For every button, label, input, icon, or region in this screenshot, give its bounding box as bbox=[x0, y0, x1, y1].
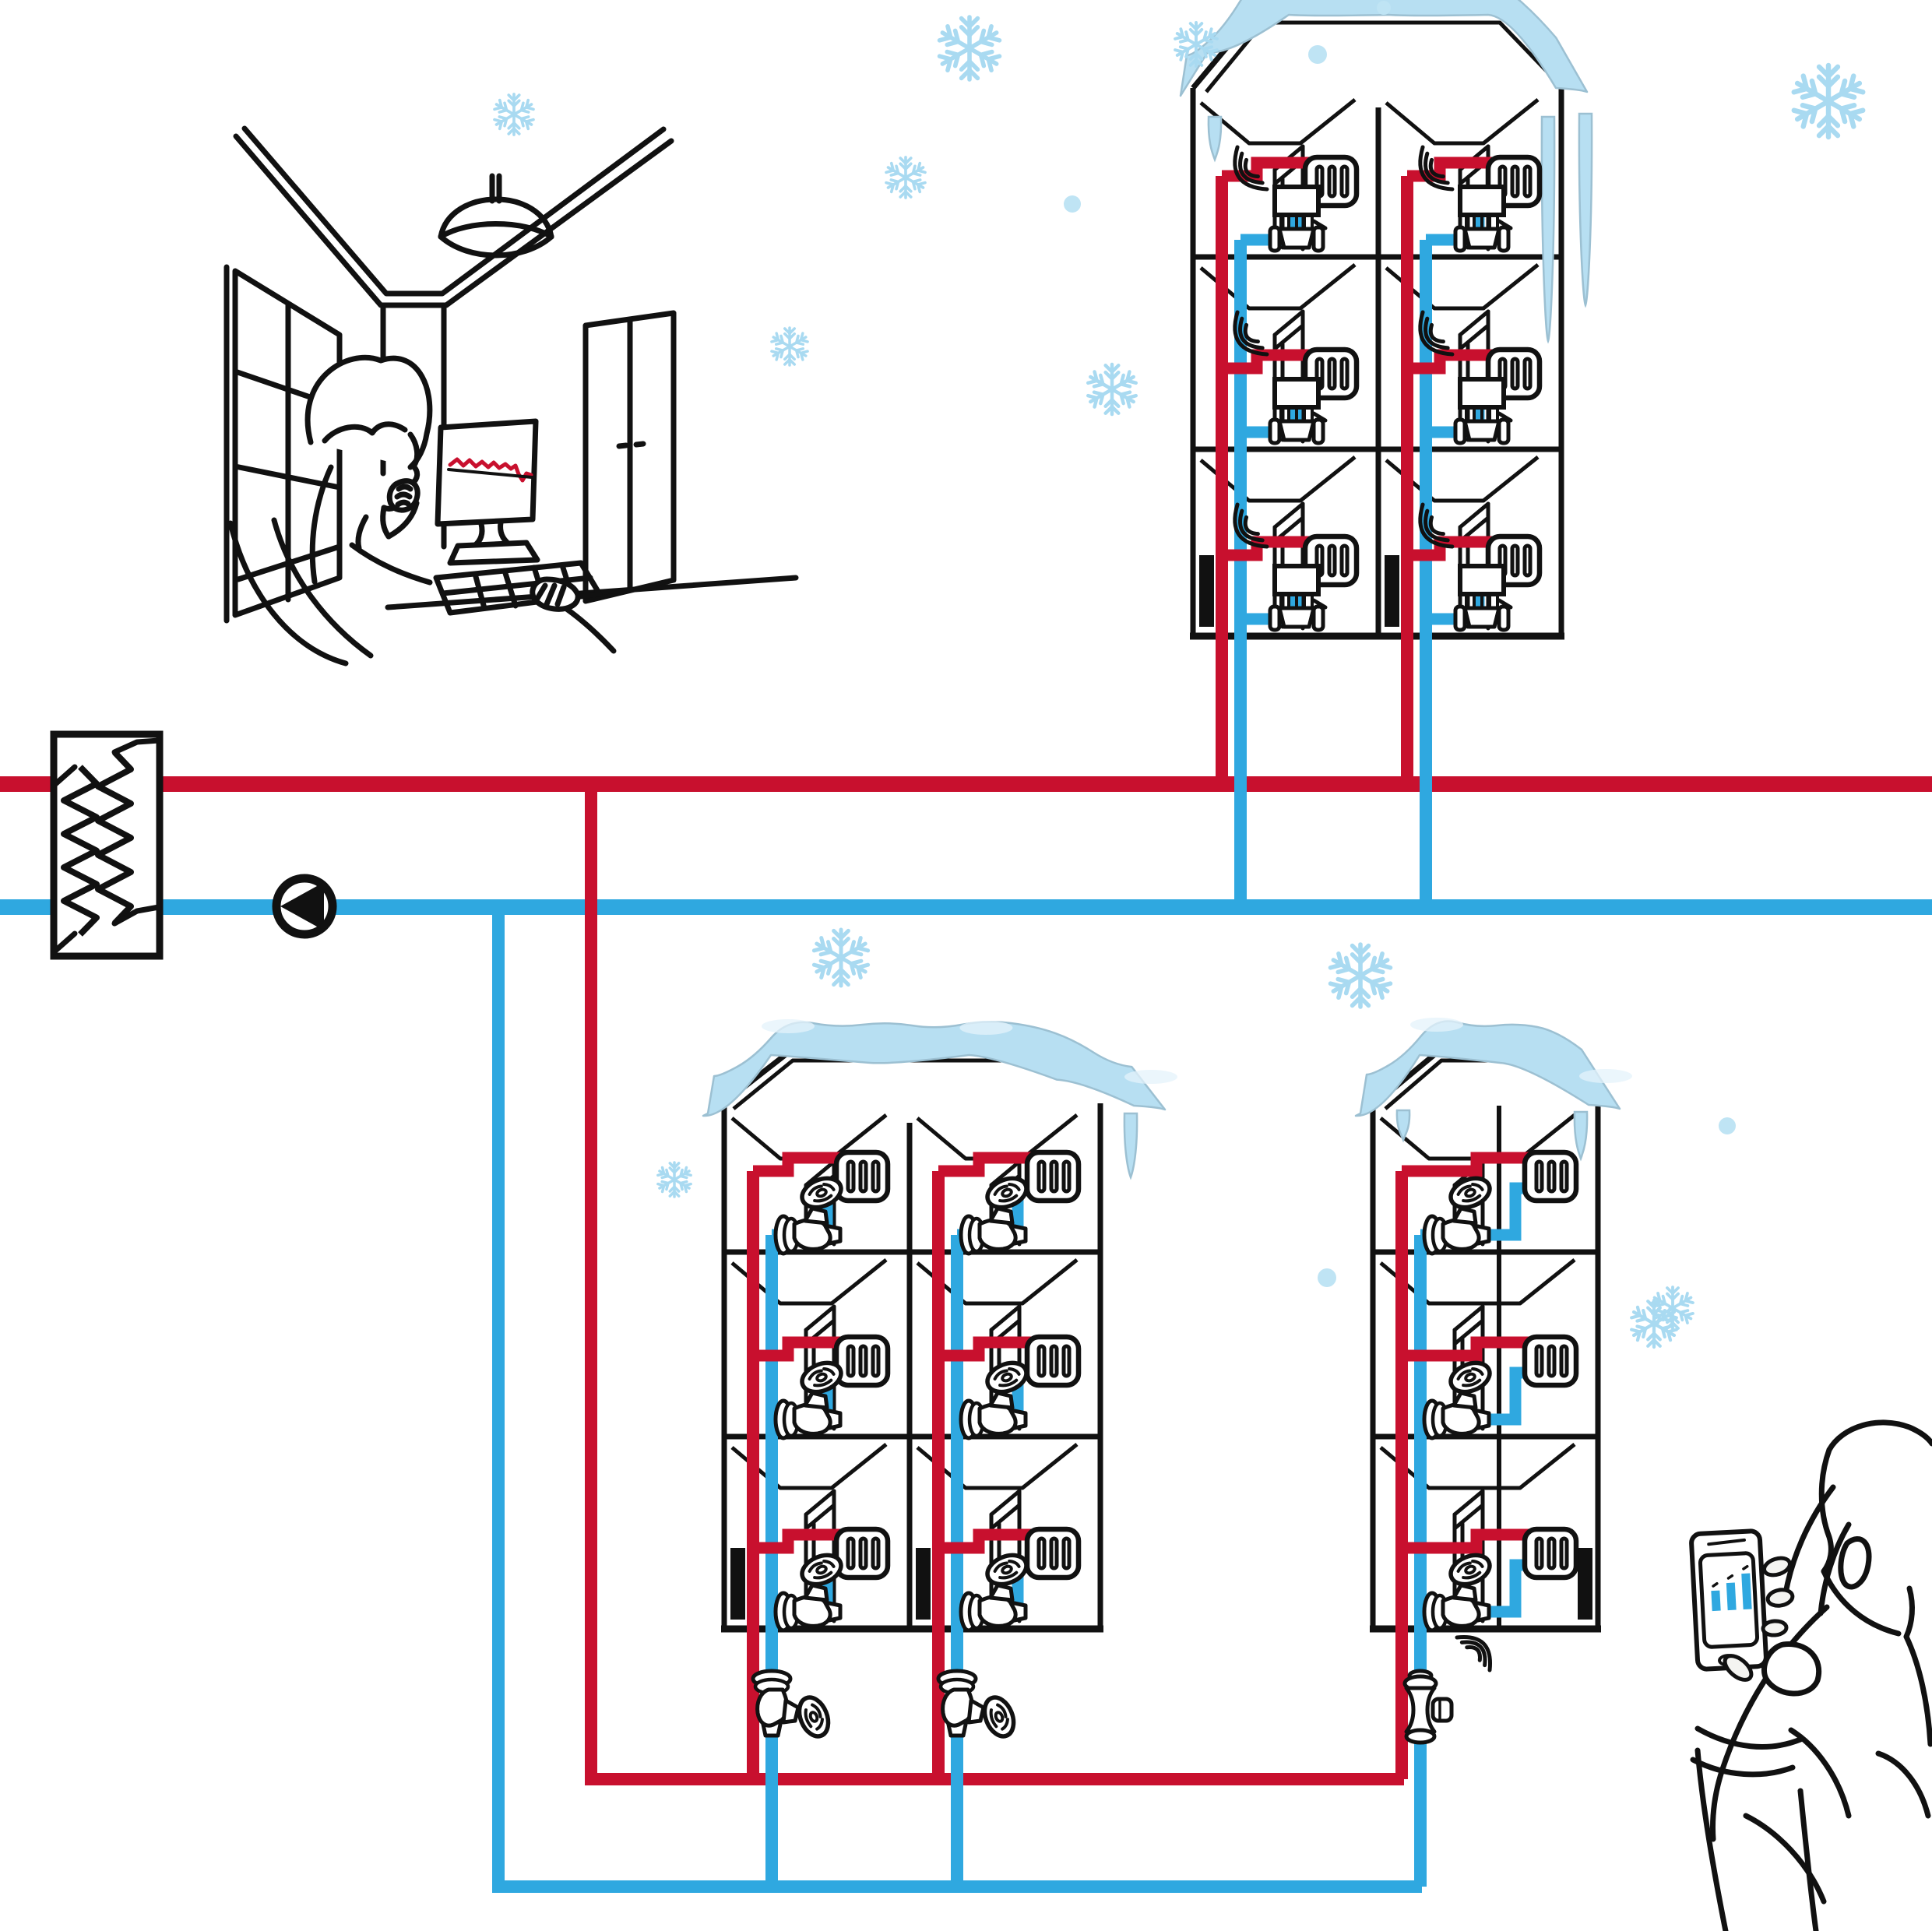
radiator-icon bbox=[1525, 1529, 1576, 1578]
entrance-door bbox=[730, 1548, 745, 1620]
snowflake-icon bbox=[1087, 364, 1137, 414]
snowflake-icon bbox=[813, 930, 869, 986]
entrance-door bbox=[916, 1548, 931, 1620]
resident-artwork bbox=[1829, 1423, 1932, 1450]
people-layer bbox=[227, 128, 1932, 1931]
snowflake-icon bbox=[1064, 195, 1081, 213]
scene-svg bbox=[0, 0, 1932, 1931]
icicle bbox=[1579, 114, 1592, 305]
manual-balancing-valve-icon bbox=[938, 1671, 1019, 1740]
snowflake-icon bbox=[494, 94, 534, 135]
snow-highlight bbox=[1410, 1018, 1463, 1032]
smart-radiator-valve-icon bbox=[1270, 566, 1325, 630]
snowflake-icon bbox=[771, 328, 808, 365]
finger bbox=[1767, 1588, 1794, 1607]
roof-snow bbox=[703, 1022, 1165, 1116]
resident-artwork bbox=[1841, 1539, 1869, 1588]
snow-highlight bbox=[1579, 1069, 1632, 1083]
operator-artwork bbox=[450, 543, 537, 563]
snowflakes-layer bbox=[494, 1, 1864, 1347]
radiator-icon bbox=[1525, 1337, 1576, 1385]
resident-artwork bbox=[1764, 1644, 1818, 1694]
operator-artwork bbox=[397, 494, 410, 497]
resident-with-smartphone bbox=[1691, 1423, 1932, 1931]
snowflake-icon bbox=[1793, 65, 1864, 137]
wifi-signal-icon bbox=[1457, 1627, 1500, 1670]
operator-artwork bbox=[236, 136, 671, 305]
radiator-icon bbox=[836, 1529, 888, 1578]
snowflake-icon bbox=[1719, 1117, 1736, 1134]
smart-radiator-valve-icon bbox=[1455, 187, 1511, 251]
operator-artwork bbox=[619, 445, 626, 446]
radiator-icon bbox=[1525, 1152, 1576, 1201]
operator-artwork bbox=[399, 487, 410, 489]
icicle bbox=[1542, 117, 1554, 341]
smart-radiator-valve-icon bbox=[1455, 379, 1511, 443]
resident-artwork bbox=[1693, 1760, 1793, 1774]
radiator-icon bbox=[836, 1152, 888, 1201]
operator-artwork bbox=[358, 517, 366, 548]
district-heating-illustration bbox=[0, 0, 1932, 1931]
snow-highlight bbox=[762, 1019, 815, 1033]
operator-artwork bbox=[398, 502, 408, 505]
snowflake-icon bbox=[1308, 45, 1327, 64]
smartphone-icon bbox=[1691, 1531, 1767, 1669]
snowflake-icon bbox=[938, 17, 1001, 79]
operator-artwork bbox=[636, 444, 643, 445]
operator-artwork bbox=[308, 357, 430, 467]
snowflake-icon bbox=[1329, 944, 1392, 1007]
facility-manager-at-computer bbox=[227, 128, 796, 663]
consumption-bar bbox=[1711, 1591, 1720, 1612]
operator-artwork bbox=[383, 508, 389, 536]
resident-artwork bbox=[1906, 1637, 1930, 1744]
radiator-icon bbox=[1027, 1152, 1079, 1201]
entrance-door bbox=[1199, 555, 1214, 627]
valve-handwheel-icon bbox=[979, 1694, 1019, 1741]
radiator-icon bbox=[1027, 1337, 1079, 1385]
radiator-icon bbox=[1027, 1529, 1079, 1578]
ceiling-corner-lines bbox=[1386, 100, 1538, 143]
icicle bbox=[1124, 1113, 1137, 1177]
smart-balancing-valve-icon bbox=[1405, 1671, 1452, 1743]
consumption-bar bbox=[1726, 1583, 1737, 1611]
snow-highlight bbox=[1124, 1070, 1177, 1084]
smart-radiator-valve-icon bbox=[1270, 379, 1325, 443]
ceiling-corner-lines bbox=[1201, 100, 1355, 143]
manual-balancing-valve-icon bbox=[753, 1671, 834, 1740]
snowflake-icon bbox=[1377, 1, 1391, 15]
circulation-pump-icon bbox=[276, 878, 333, 934]
smart-radiator-valve-icon bbox=[1270, 187, 1325, 251]
snowflake-icon bbox=[657, 1162, 692, 1197]
finger bbox=[1762, 1620, 1786, 1636]
resident-artwork bbox=[1821, 1450, 1831, 1571]
ceiling-corner-lines bbox=[1381, 1260, 1575, 1303]
resident-artwork bbox=[1698, 1729, 1800, 1746]
snowflake-icon bbox=[885, 157, 926, 198]
resident-artwork bbox=[1878, 1753, 1928, 1816]
ceiling-corner-lines bbox=[1381, 1444, 1575, 1488]
icicle bbox=[1209, 117, 1221, 160]
entrance-door bbox=[1385, 555, 1399, 627]
entrance-door bbox=[1578, 1548, 1592, 1620]
radiator-icon bbox=[836, 1337, 888, 1385]
resident-artwork bbox=[1906, 1588, 1912, 1637]
snowflake-icon bbox=[1318, 1268, 1336, 1287]
icicle bbox=[1575, 1112, 1587, 1159]
smart-radiator-valve-icon bbox=[1455, 566, 1511, 630]
heat-exchanger-icon bbox=[54, 734, 160, 956]
operator-artwork bbox=[352, 545, 430, 582]
valve-handwheel-icon bbox=[794, 1694, 833, 1741]
snow-highlight bbox=[959, 1021, 1012, 1035]
